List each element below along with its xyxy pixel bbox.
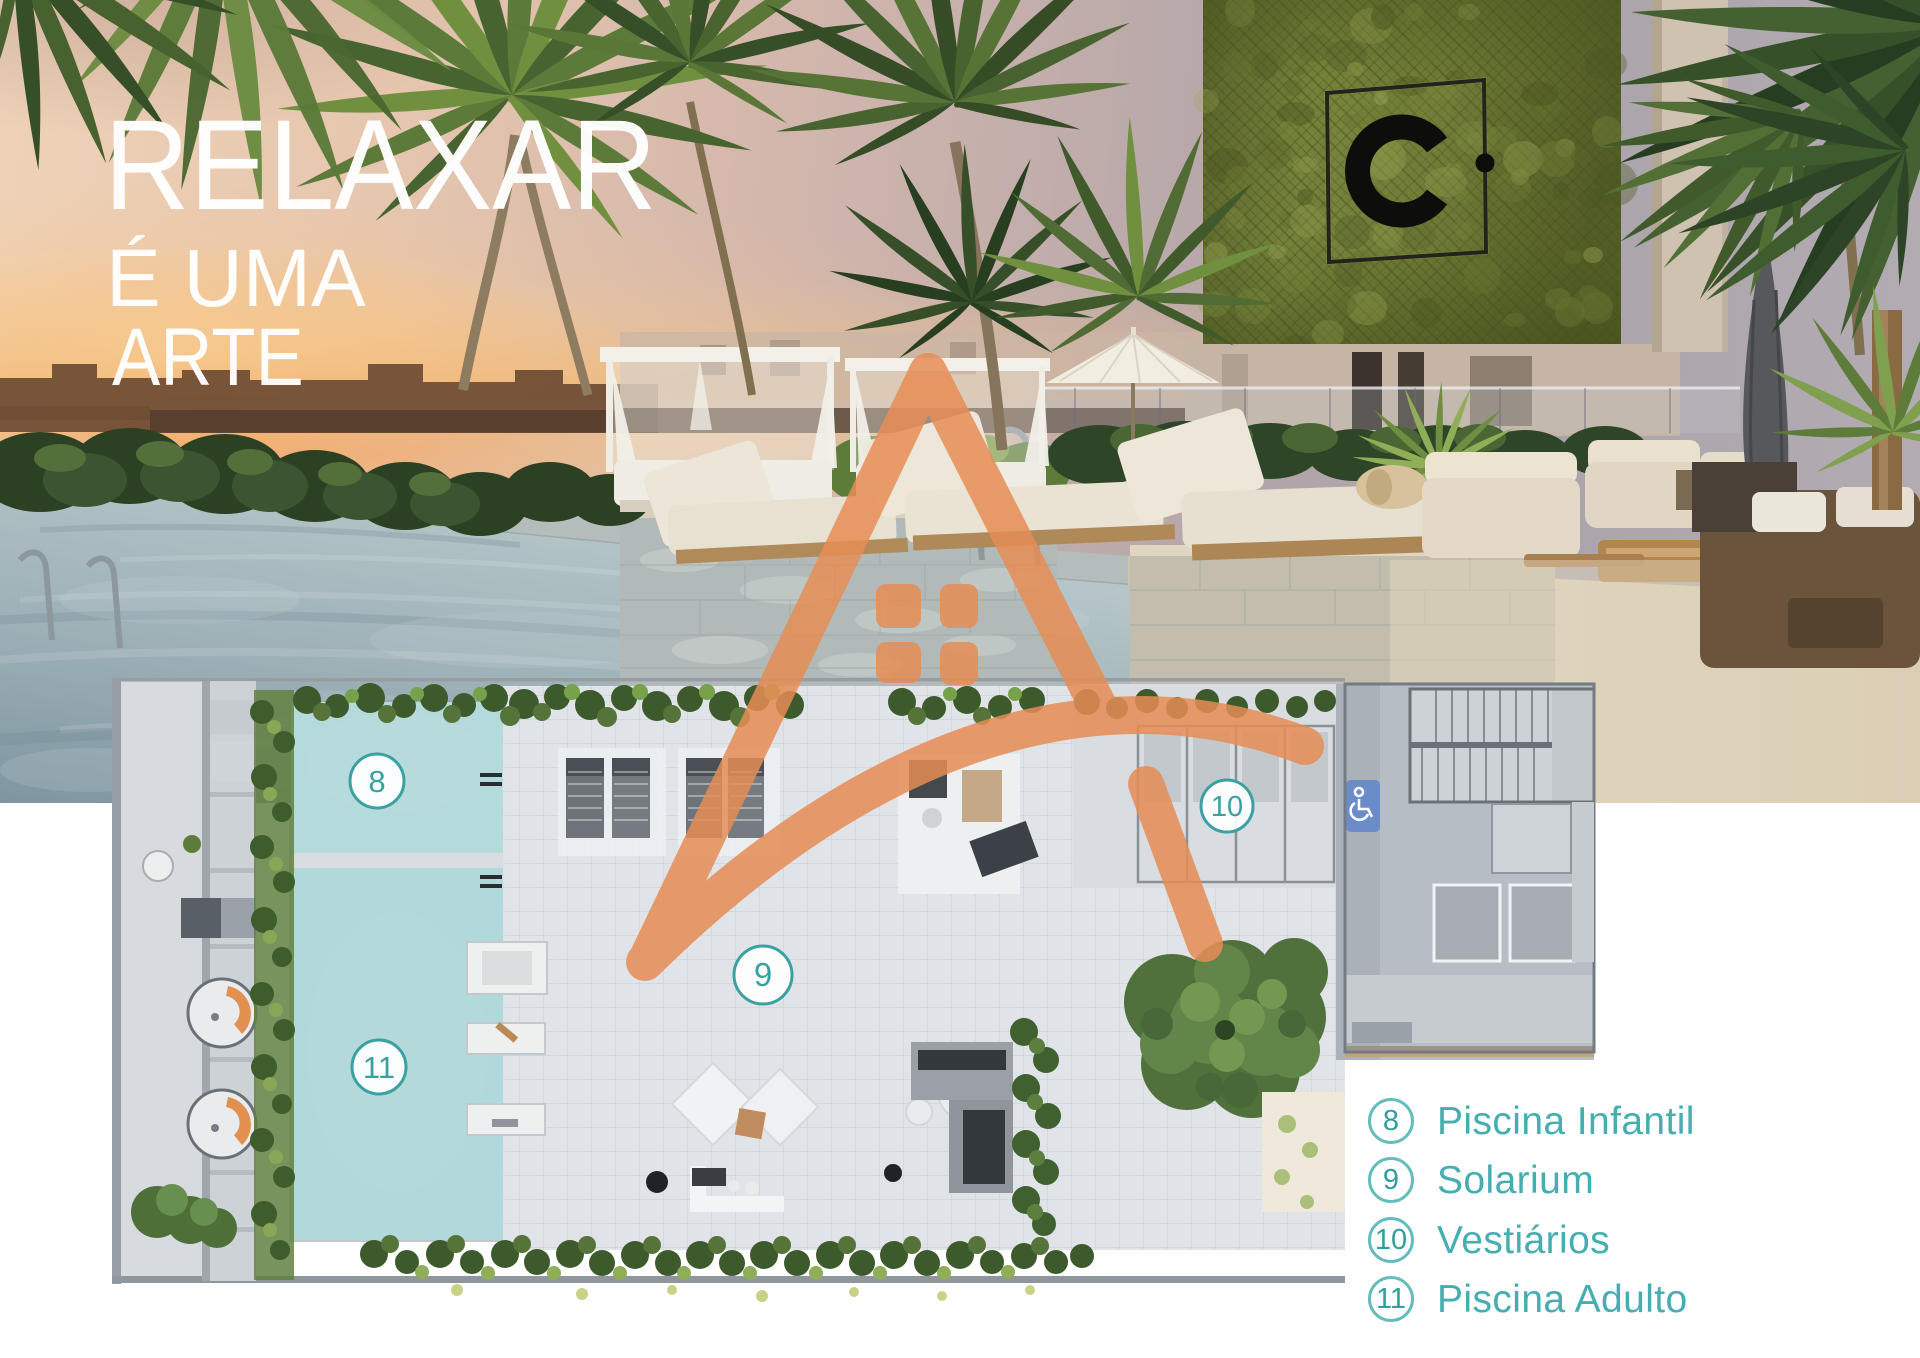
svg-text:11: 11: [363, 1050, 395, 1085]
svg-text:10: 10: [1211, 791, 1243, 823]
svg-text:8: 8: [368, 764, 385, 799]
svg-text:9: 9: [754, 956, 772, 993]
